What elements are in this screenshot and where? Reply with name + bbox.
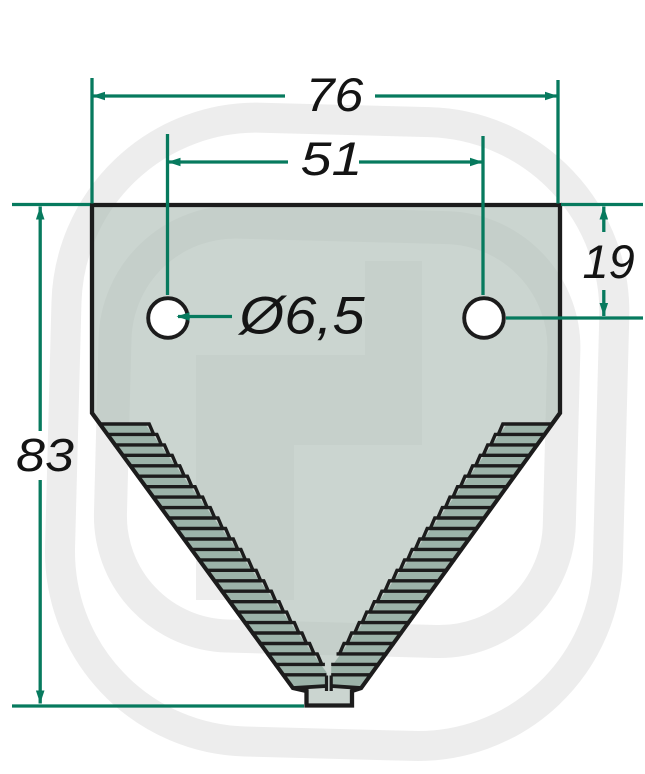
svg-text:19: 19 bbox=[583, 235, 635, 288]
svg-text:51: 51 bbox=[301, 132, 363, 185]
svg-text:76: 76 bbox=[306, 69, 364, 121]
svg-text:83: 83 bbox=[16, 430, 74, 482]
svg-text:Ø6,5: Ø6,5 bbox=[237, 286, 364, 345]
